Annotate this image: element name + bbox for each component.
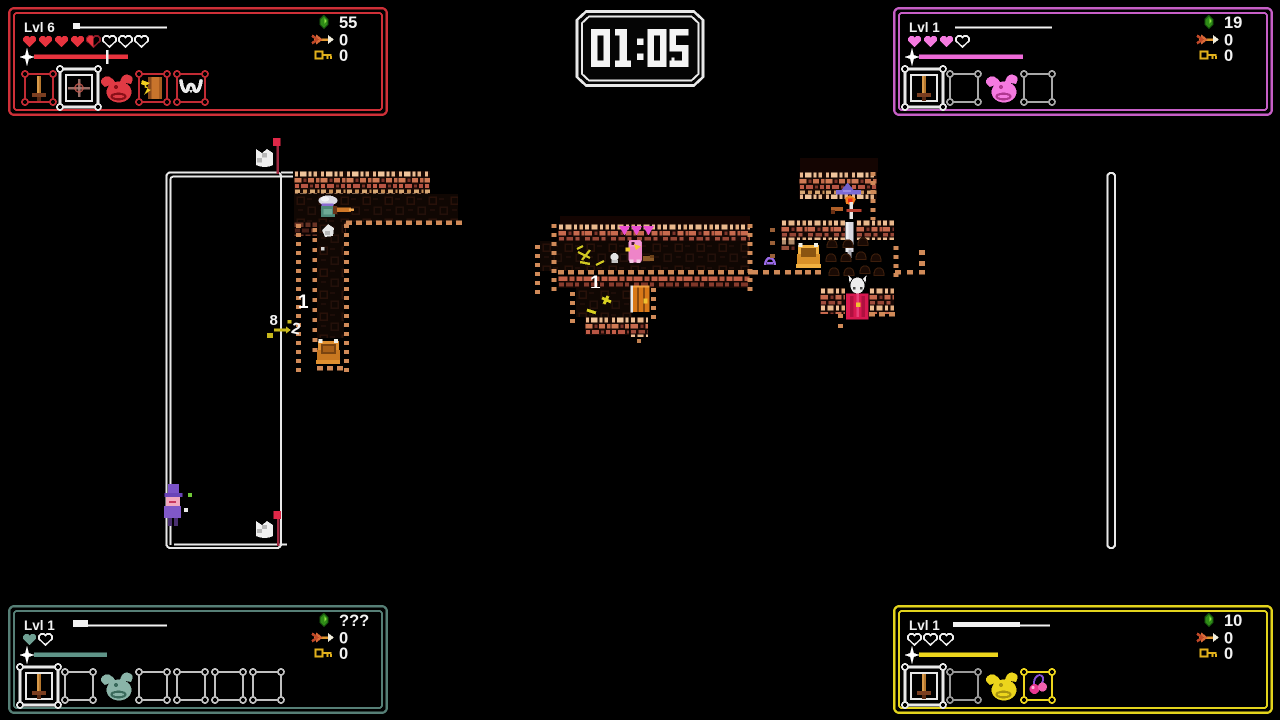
svg-text:0: 0 <box>339 47 348 65</box>
svg-text:Lvl 1: Lvl 1 <box>24 618 55 633</box>
svg-text:1: 1 <box>298 292 309 313</box>
svg-text:Lvl 1: Lvl 1 <box>909 20 940 35</box>
svg-text:10: 10 <box>1224 612 1242 630</box>
svg-text:8: 8 <box>270 312 278 329</box>
svg-text:0: 0 <box>1224 47 1233 65</box>
svg-text:19: 19 <box>1224 14 1242 32</box>
svg-text:0: 0 <box>1224 645 1233 663</box>
svg-text:Lvl 6: Lvl 6 <box>24 20 55 35</box>
svg-text:Lvl 1: Lvl 1 <box>909 618 940 633</box>
svg-text:0: 0 <box>339 645 348 663</box>
svg-text:55: 55 <box>339 14 357 32</box>
svg-text:???: ??? <box>339 612 369 630</box>
